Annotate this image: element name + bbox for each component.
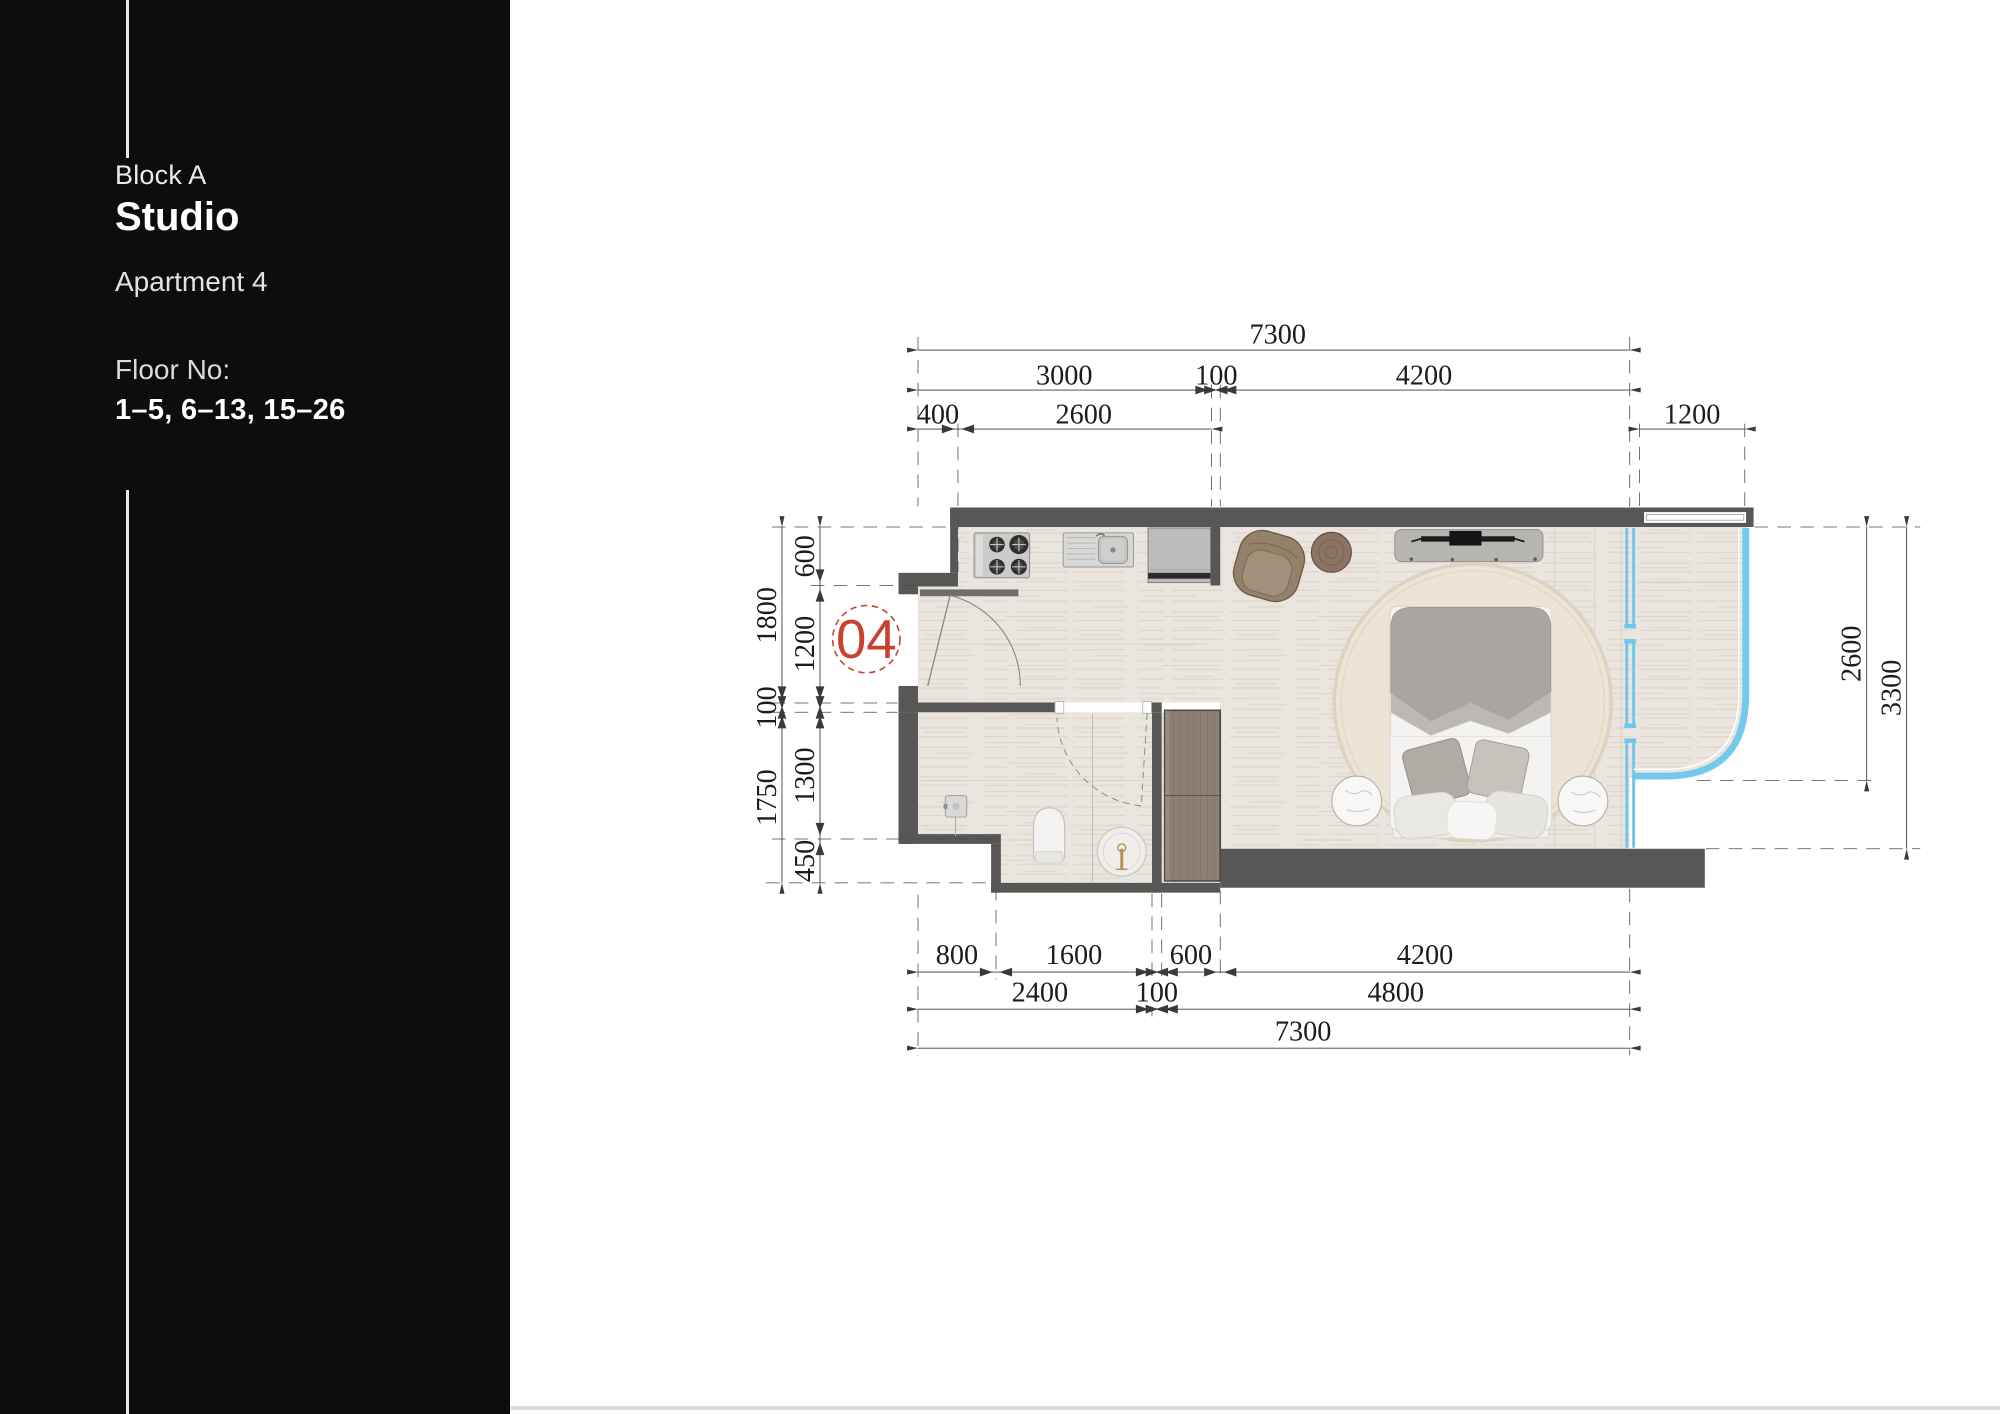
dim-left-1750: 1750 <box>752 769 783 826</box>
stove <box>974 533 1030 578</box>
dim-left-1300: 1300 <box>790 747 821 804</box>
page: Block A Studio Apartment 4 Floor No: 1–5… <box>0 0 2000 1414</box>
kitchen-sink <box>1063 533 1133 567</box>
apartment-label: Apartment 4 <box>115 266 346 298</box>
dim-right-3300: 3300 <box>1876 660 1907 717</box>
sidebar: Block A Studio Apartment 4 Floor No: 1–5… <box>0 0 510 1414</box>
shower <box>1097 827 1146 876</box>
dim-bottom-600: 600 <box>1170 940 1212 971</box>
floor-plan-svg: 7300 3000 100 4200 400 2600 1200 800 160… <box>590 230 1990 1090</box>
dim-left-1200: 1200 <box>790 616 821 673</box>
floor-ranges: 1–5, 6–13, 15–26 <box>115 394 346 427</box>
dim-top-4200: 4200 <box>1396 361 1453 392</box>
dim-left-600: 600 <box>790 535 821 577</box>
bathroom-door-jamb-right <box>1143 702 1152 714</box>
toilet <box>1034 808 1065 863</box>
dim-left-100: 100 <box>752 686 783 728</box>
dim-top-2600: 2600 <box>1055 400 1112 431</box>
wardrobe <box>1165 710 1221 881</box>
dim-bottom-4800: 4800 <box>1367 977 1424 1008</box>
bathroom-door-jamb-left <box>1055 702 1064 714</box>
dim-left-450: 450 <box>790 840 821 882</box>
dim-right-2600: 2600 <box>1836 625 1867 682</box>
dim-bottom-2400: 2400 <box>1012 977 1069 1008</box>
dim-bottom-800: 800 <box>936 940 978 971</box>
dim-top-100: 100 <box>1195 361 1237 392</box>
divider-line-top <box>126 0 129 158</box>
page-bottom-rule <box>510 1406 2000 1410</box>
tv-console <box>1395 529 1543 561</box>
unit-type-title: Studio <box>115 195 346 240</box>
dim-top-400: 400 <box>917 400 959 431</box>
dim-top-3000: 3000 <box>1036 361 1093 392</box>
dim-left-1800: 1800 <box>752 587 783 644</box>
block-label: Block A <box>115 160 346 191</box>
divider-line-bottom <box>126 490 129 1414</box>
dim-bottom-overall: 7300 <box>1275 1016 1332 1047</box>
kitchen-appliance <box>1148 528 1210 583</box>
dim-bottom-1600: 1600 <box>1046 940 1103 971</box>
dim-bottom-100: 100 <box>1136 977 1178 1008</box>
dim-bottom-4200: 4200 <box>1397 940 1454 971</box>
unit-badge: 04 <box>833 605 900 672</box>
dim-balcony-width: 1200 <box>1664 400 1721 431</box>
floor-plan: 7300 3000 100 4200 400 2600 1200 800 160… <box>590 230 1990 1090</box>
unit-info: Block A Studio Apartment 4 Floor No: 1–5… <box>115 160 346 427</box>
bed <box>1390 606 1552 840</box>
side-table <box>1311 532 1351 572</box>
nightstand-right <box>1558 776 1608 826</box>
floor-no-label: Floor No: <box>115 354 346 386</box>
unit-number: 04 <box>836 609 897 670</box>
dim-top-overall: 7300 <box>1249 320 1306 351</box>
balcony-window <box>1643 511 1746 523</box>
nightstand-left <box>1332 776 1382 826</box>
